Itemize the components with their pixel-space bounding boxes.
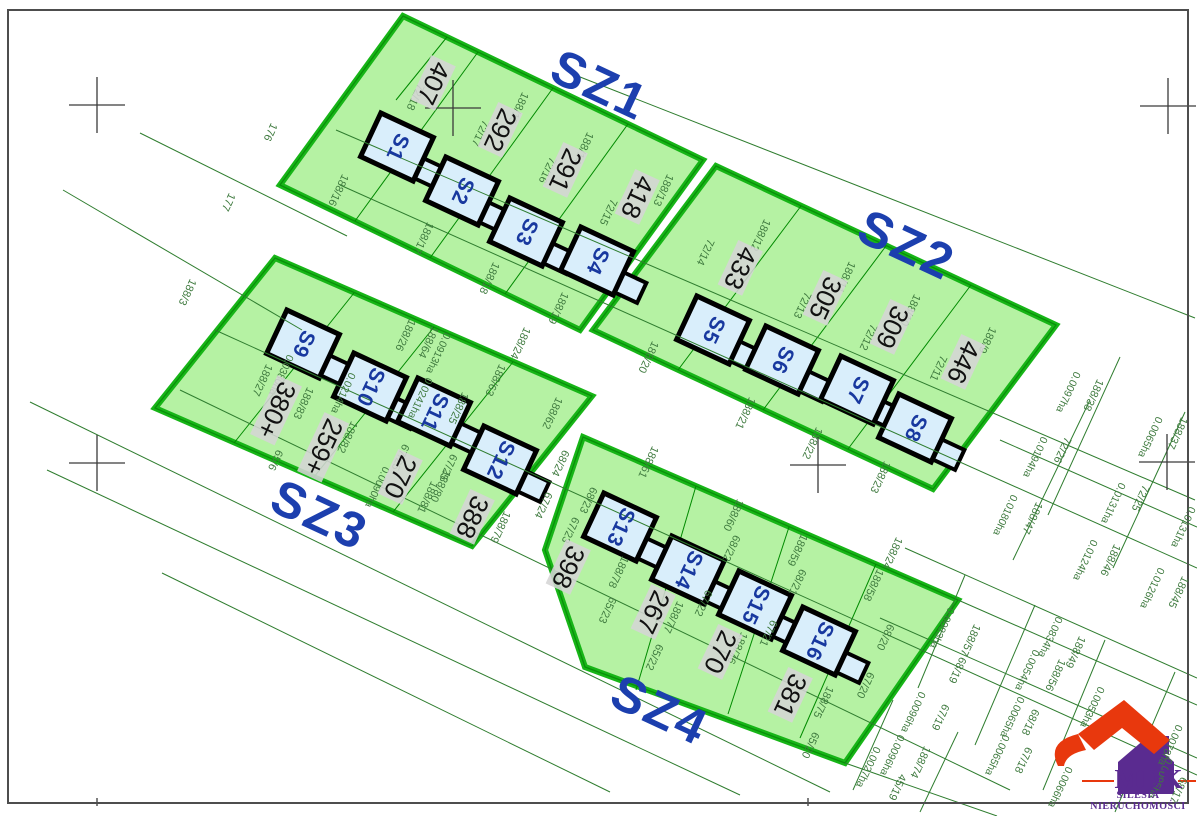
plot-number-label: 270 — [377, 449, 423, 505]
parcel-area-label: 0.0054ha — [1012, 648, 1041, 693]
parcel-number-label: 65/22 — [643, 642, 666, 672]
house-unit-label: S1 — [380, 129, 413, 164]
section-label: SZ2 — [849, 197, 965, 292]
parcel-number-label: 188/57 — [957, 622, 982, 658]
house-unit-label: S13 — [601, 504, 640, 551]
parcel-number-label: 188/59 — [784, 532, 809, 568]
parcel-area-label: 0.0194ha — [1020, 435, 1049, 480]
house-unit-label: S2 — [445, 173, 478, 208]
parcel-number-label: 67/21 — [757, 618, 780, 648]
boundary-parcel-label: 188/3 — [176, 277, 199, 307]
plot-number-label: 309 — [869, 299, 915, 355]
parcel-area-label: 0.0131ha — [1098, 481, 1127, 526]
plot-number-label: 398 — [545, 539, 591, 595]
parcel-area-label: 0.0027ha — [853, 745, 882, 790]
parcel-number-label: 188/26 — [392, 317, 417, 353]
parcel-number-label: 188/62 — [539, 395, 564, 431]
parcel-number-label: 67/24 — [532, 490, 555, 520]
parcel-number-label: 72/14 — [694, 237, 717, 267]
site-plan-canvas: 188/1672/18188/1572/17188/1472/16188/137… — [0, 0, 1197, 816]
parcel-number-label: 188/24 — [507, 325, 532, 361]
parcel-number-label: 188/47 — [1019, 500, 1044, 536]
parcel-number-label: 188/60 — [720, 497, 745, 533]
house-unit-label: S14 — [669, 547, 708, 594]
parcel-number-label: 188/46 — [1097, 542, 1122, 578]
parcel-number-label: 188/18 — [476, 260, 501, 296]
plot-number-label: 433 — [717, 240, 763, 296]
parcel-area-label: 0.0180ha — [990, 493, 1019, 538]
parcel-area-label: 0.0065ha — [1135, 415, 1164, 460]
parcel-number-label: 45/19 — [886, 772, 909, 802]
parcel-number-label: 68/21 — [786, 567, 809, 597]
parcel-area-label: 0.0065ha — [982, 733, 1011, 778]
house-unit-label: S3 — [509, 214, 542, 249]
parcel-number-label: 65/20 — [799, 730, 822, 760]
parcel-area-label: 0.0053ha — [1077, 685, 1106, 730]
parcel-area-label: 0.0066ha — [1045, 765, 1074, 810]
parcel-area-label: 0.0097ha — [1053, 370, 1082, 415]
section-label: SZ3 — [262, 467, 378, 562]
house-unit-label: S12 — [481, 437, 520, 484]
parcel-number-label: 188/21 — [732, 395, 757, 431]
parcel-number-label: 188/74 — [907, 744, 932, 780]
parcel-number-label: 72/25 — [1129, 483, 1152, 513]
parcel-area-label: 0.0096ha — [877, 733, 906, 778]
parcel-area-label: 0.0131ha — [1168, 505, 1197, 550]
plot-number-label: 270 — [697, 624, 743, 680]
plot-number-label: 292 — [477, 102, 523, 158]
parcel-area-label: 0.0124ha — [1070, 538, 1099, 583]
parcel-number-label: 68/23 — [577, 485, 600, 515]
parcel-number-label: 188/75 — [810, 684, 835, 720]
parcel-number-label: 65/6 — [265, 448, 285, 472]
plot-number-label: 407 — [410, 55, 456, 111]
parcel-area-label: 0.0126ha — [1137, 566, 1166, 611]
parcel-number-label: 188/23 — [867, 459, 892, 495]
parcel-number-label: 67/18 — [1012, 745, 1035, 775]
parcel-number-label: 72/26 — [1051, 435, 1074, 465]
parcel-number-label: 188/17 — [410, 220, 435, 256]
boundary-parcel-label: 176 — [261, 121, 280, 143]
parcel-number-label: 68/19 — [946, 655, 969, 685]
plot-number-label: 381 — [767, 667, 813, 723]
logo-tagline-text: SILESIA NIERUCHOMOŚCI — [1076, 790, 1197, 812]
house-unit-label: S16 — [800, 618, 839, 665]
parcel-number-label: 188/20 — [635, 339, 660, 375]
parcel-number-label: 68/20 — [874, 622, 897, 652]
parcel-number-label: 68/18 — [1019, 707, 1042, 737]
plot-number-label: 418 — [614, 169, 660, 225]
parcel-number-label: 188/58 — [860, 567, 885, 603]
parcel-number-label: 67/20 — [854, 670, 877, 700]
parcel-number-label: 188/16 — [325, 172, 350, 208]
house-unit-label: S10 — [351, 364, 390, 411]
plot-number-label: 446 — [940, 334, 986, 390]
parcel-number-label: 188/63 — [482, 362, 507, 398]
parcel-number-label: 188/56 — [1042, 657, 1067, 693]
house-unit-label: S6 — [765, 342, 798, 377]
house-unit-label: S8 — [898, 410, 931, 445]
parcel-number-label: 67/22 — [692, 588, 715, 618]
parcel-number-label: 188/22 — [799, 425, 824, 461]
parcel-number-label: 188/19 — [545, 290, 570, 326]
parcel-number-label: 188/45 — [1165, 574, 1190, 610]
house-unit-label: S5 — [696, 312, 729, 347]
parcel-number-label: 188/24 — [879, 535, 904, 571]
parcel-number-label: 65/23 — [596, 595, 619, 625]
house-unit-label: S4 — [580, 243, 613, 278]
parcel-area-label: 0.0096ha — [898, 690, 927, 735]
plot-number-label: 291 — [542, 142, 588, 198]
parcel-number-label: 188/78 — [605, 554, 630, 590]
boundary-parcel-label: 177 — [219, 191, 238, 213]
label-overlay: 188/1672/18188/1572/17188/1472/16188/137… — [0, 0, 1197, 816]
parcel-number-label: 188/79 — [487, 509, 512, 545]
parcel-number-label: 67/19 — [929, 702, 952, 732]
parcel-number-label: 188/38 — [1080, 377, 1105, 413]
section-label: SZ4 — [602, 662, 718, 757]
house-unit-label: S7 — [840, 372, 873, 407]
parcel-number-label: 188/61 — [635, 444, 660, 480]
parcel-number-label: 68/22 — [720, 533, 743, 563]
parcel-number-label: 68/24 — [549, 448, 572, 478]
plot-number-label: 305 — [802, 270, 848, 326]
section-label: SZ1 — [542, 37, 658, 132]
parcel-number-label: 188/37 — [1164, 415, 1189, 451]
parcel-number-label: 188/25 — [445, 390, 470, 426]
parcel-area-label: 0.0083ha — [927, 606, 956, 651]
